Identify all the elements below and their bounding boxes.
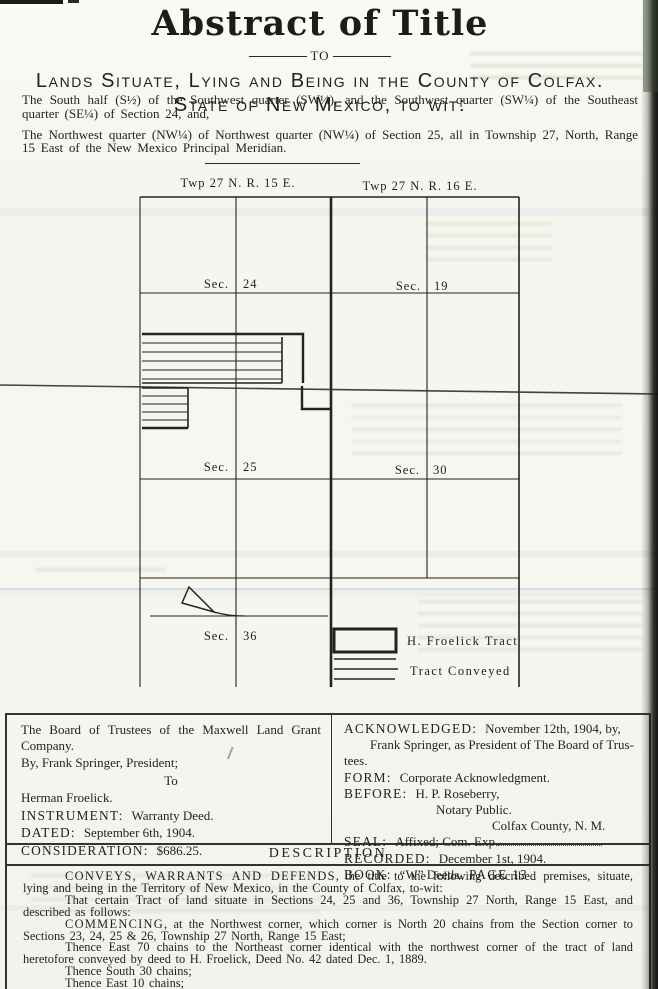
form-line: FORM:Corporate Acknowledgment. [344, 771, 639, 785]
divider-dash [333, 56, 391, 57]
scan-artifact-corner-mark [0, 0, 63, 4]
legend-froelick-label: H. Froelick Tract [407, 634, 518, 648]
scan-artifact-page-edge [643, 0, 658, 92]
svg-text:Sec.: Sec. [395, 463, 420, 477]
svg-text:30: 30 [433, 463, 448, 477]
scan-artifact-page-edge [641, 0, 658, 989]
township-grid-lines [140, 197, 519, 687]
grantor-line: The Board of Trustees of the Maxwell Lan… [21, 722, 321, 753]
section-divider-rule [205, 163, 360, 164]
county-line: Colfax County, N. M. [344, 819, 639, 833]
grantor-grantee-cell: The Board of Trustees of the Maxwell Lan… [7, 715, 332, 843]
map-legend: H. Froelick Tract Tract Conveyed [334, 629, 518, 679]
legend-hatch-swatch [334, 659, 398, 679]
description-body: CONVEYS, WARRANTS AND DEFENDS,the title … [5, 866, 651, 989]
scan-artifact-corner-mark [68, 0, 79, 3]
section-label-36: Sec. 36 [204, 629, 258, 643]
section36-sliver-tract [182, 587, 244, 616]
svg-text:36: 36 [243, 629, 258, 643]
section-label-30: Sec. 30 [395, 463, 448, 477]
acknowledged-continuation: Frank Springer, as President of The Boar… [344, 738, 639, 752]
svg-text:Sec.: Sec. [204, 629, 229, 643]
document-title: Abstract of Title [0, 4, 640, 44]
svg-text:25: 25 [243, 460, 258, 474]
township-label-right: Twp 27 N. R. 16 E. [362, 179, 477, 193]
divider-dash [249, 56, 307, 57]
description-heading-bar: DESCRIPTION [5, 843, 651, 866]
scanned-abstract-of-title-page: Abstract of Title TO Lands Situate, Lyin… [0, 0, 658, 989]
township-label-left: Twp 27 N. R. 15 E. [180, 176, 295, 190]
instrument-line: INSTRUMENT:Warranty Deed. [21, 808, 321, 824]
dated-line: DATED:September 6th, 1904. [21, 825, 321, 841]
description-paragraph: CONVEYS, WARRANTS AND DEFENDS,the title … [23, 871, 633, 895]
before-line: BEFORE:H. P. Roseberry, [344, 787, 639, 801]
acknowledged-line: ACKNOWLEDGED:November 12th, 1904, by, [344, 722, 639, 736]
svg-text:Sec.: Sec. [396, 279, 421, 293]
subtitle-line-1: Lands Situate, Lying and Being in the Co… [0, 69, 640, 93]
land-description-intro: The South half (S½) of the Southwest qua… [22, 93, 638, 162]
scan-crease-line [0, 385, 658, 394]
instrument-summary-table: The Board of Trustees of the Maxwell Lan… [5, 713, 651, 845]
grantee-line: Herman Froelick. [21, 790, 321, 806]
section-label-24: Sec. 24 [204, 277, 258, 291]
notary-line: Notary Public. [344, 803, 639, 817]
description-paragraph: COMMENCING,at the Northwest corner, whic… [23, 919, 633, 943]
legend-conveyed-label: Tract Conveyed [410, 664, 511, 678]
section-label-25: Sec. 25 [204, 460, 258, 474]
svg-text:24: 24 [243, 277, 258, 291]
conveyance-to-label: To [21, 773, 321, 789]
svg-text:Sec.: Sec. [204, 460, 229, 474]
section-label-19: Sec. 19 [396, 279, 449, 293]
svg-text:Sec.: Sec. [204, 277, 229, 291]
to-label: TO [307, 48, 332, 64]
description-heading: DESCRIPTION [269, 846, 388, 861]
intro-paragraph-1: The South half (S½) of the Southwest qua… [22, 93, 638, 121]
conveyed-tract-hatch-lower [142, 388, 188, 428]
acknowledgment-cell: ACKNOWLEDGED:November 12th, 1904, by, Fr… [332, 715, 649, 843]
intro-paragraph-2: The Northwest quarter (NW¼) of Northwest… [22, 128, 638, 156]
by-line: By, Frank Springer, President; [21, 755, 321, 771]
conveyed-tract-hatch-upper [142, 337, 282, 383]
description-paragraph: That certain Tract of land situate in Se… [23, 895, 633, 919]
description-paragraph: Thence East 70 chains to the Northeast c… [23, 942, 633, 966]
acknowledged-continuation-2: tees. [344, 754, 639, 768]
plat-map: Twp 27 N. R. 15 E. Twp 27 N. R. 16 E. [0, 172, 658, 712]
svg-text:19: 19 [434, 279, 449, 293]
legend-froelick-swatch [334, 629, 396, 652]
to-divider: TO [0, 48, 640, 64]
